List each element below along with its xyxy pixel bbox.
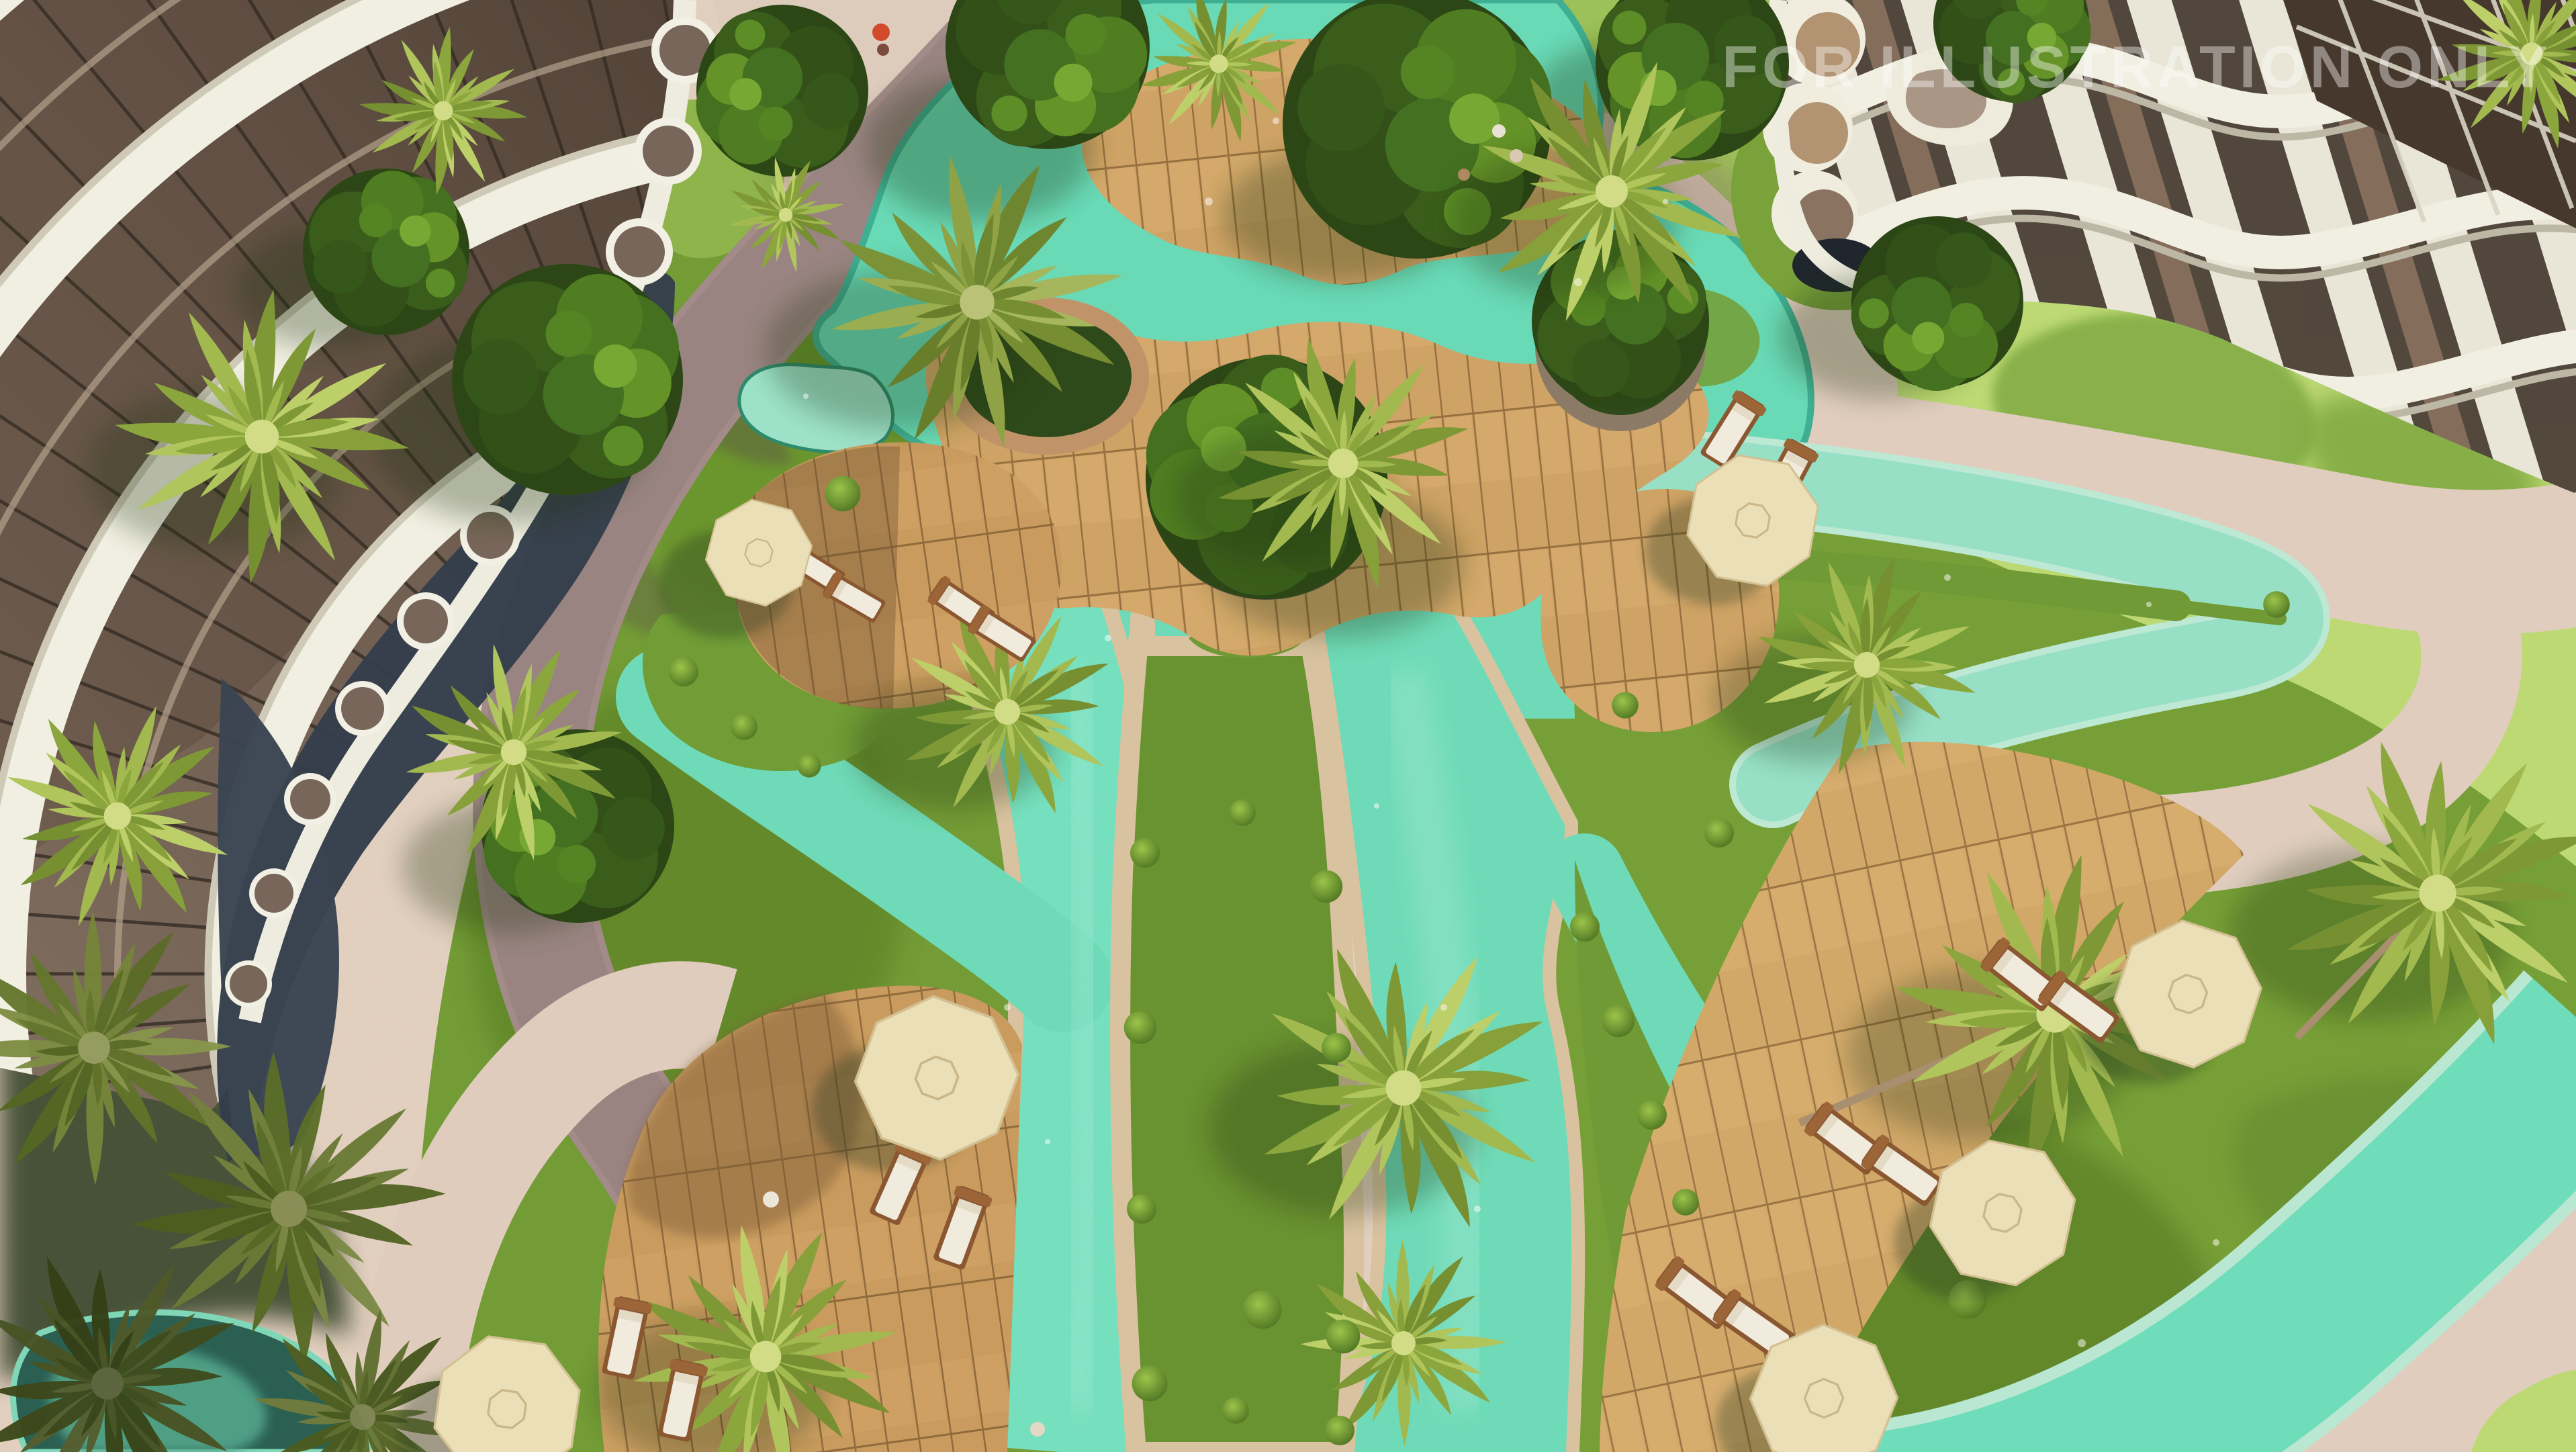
svg-text:FOR ILLUSTRATION ONLY: FOR ILLUSTRATION ONLY xyxy=(1722,34,2552,100)
